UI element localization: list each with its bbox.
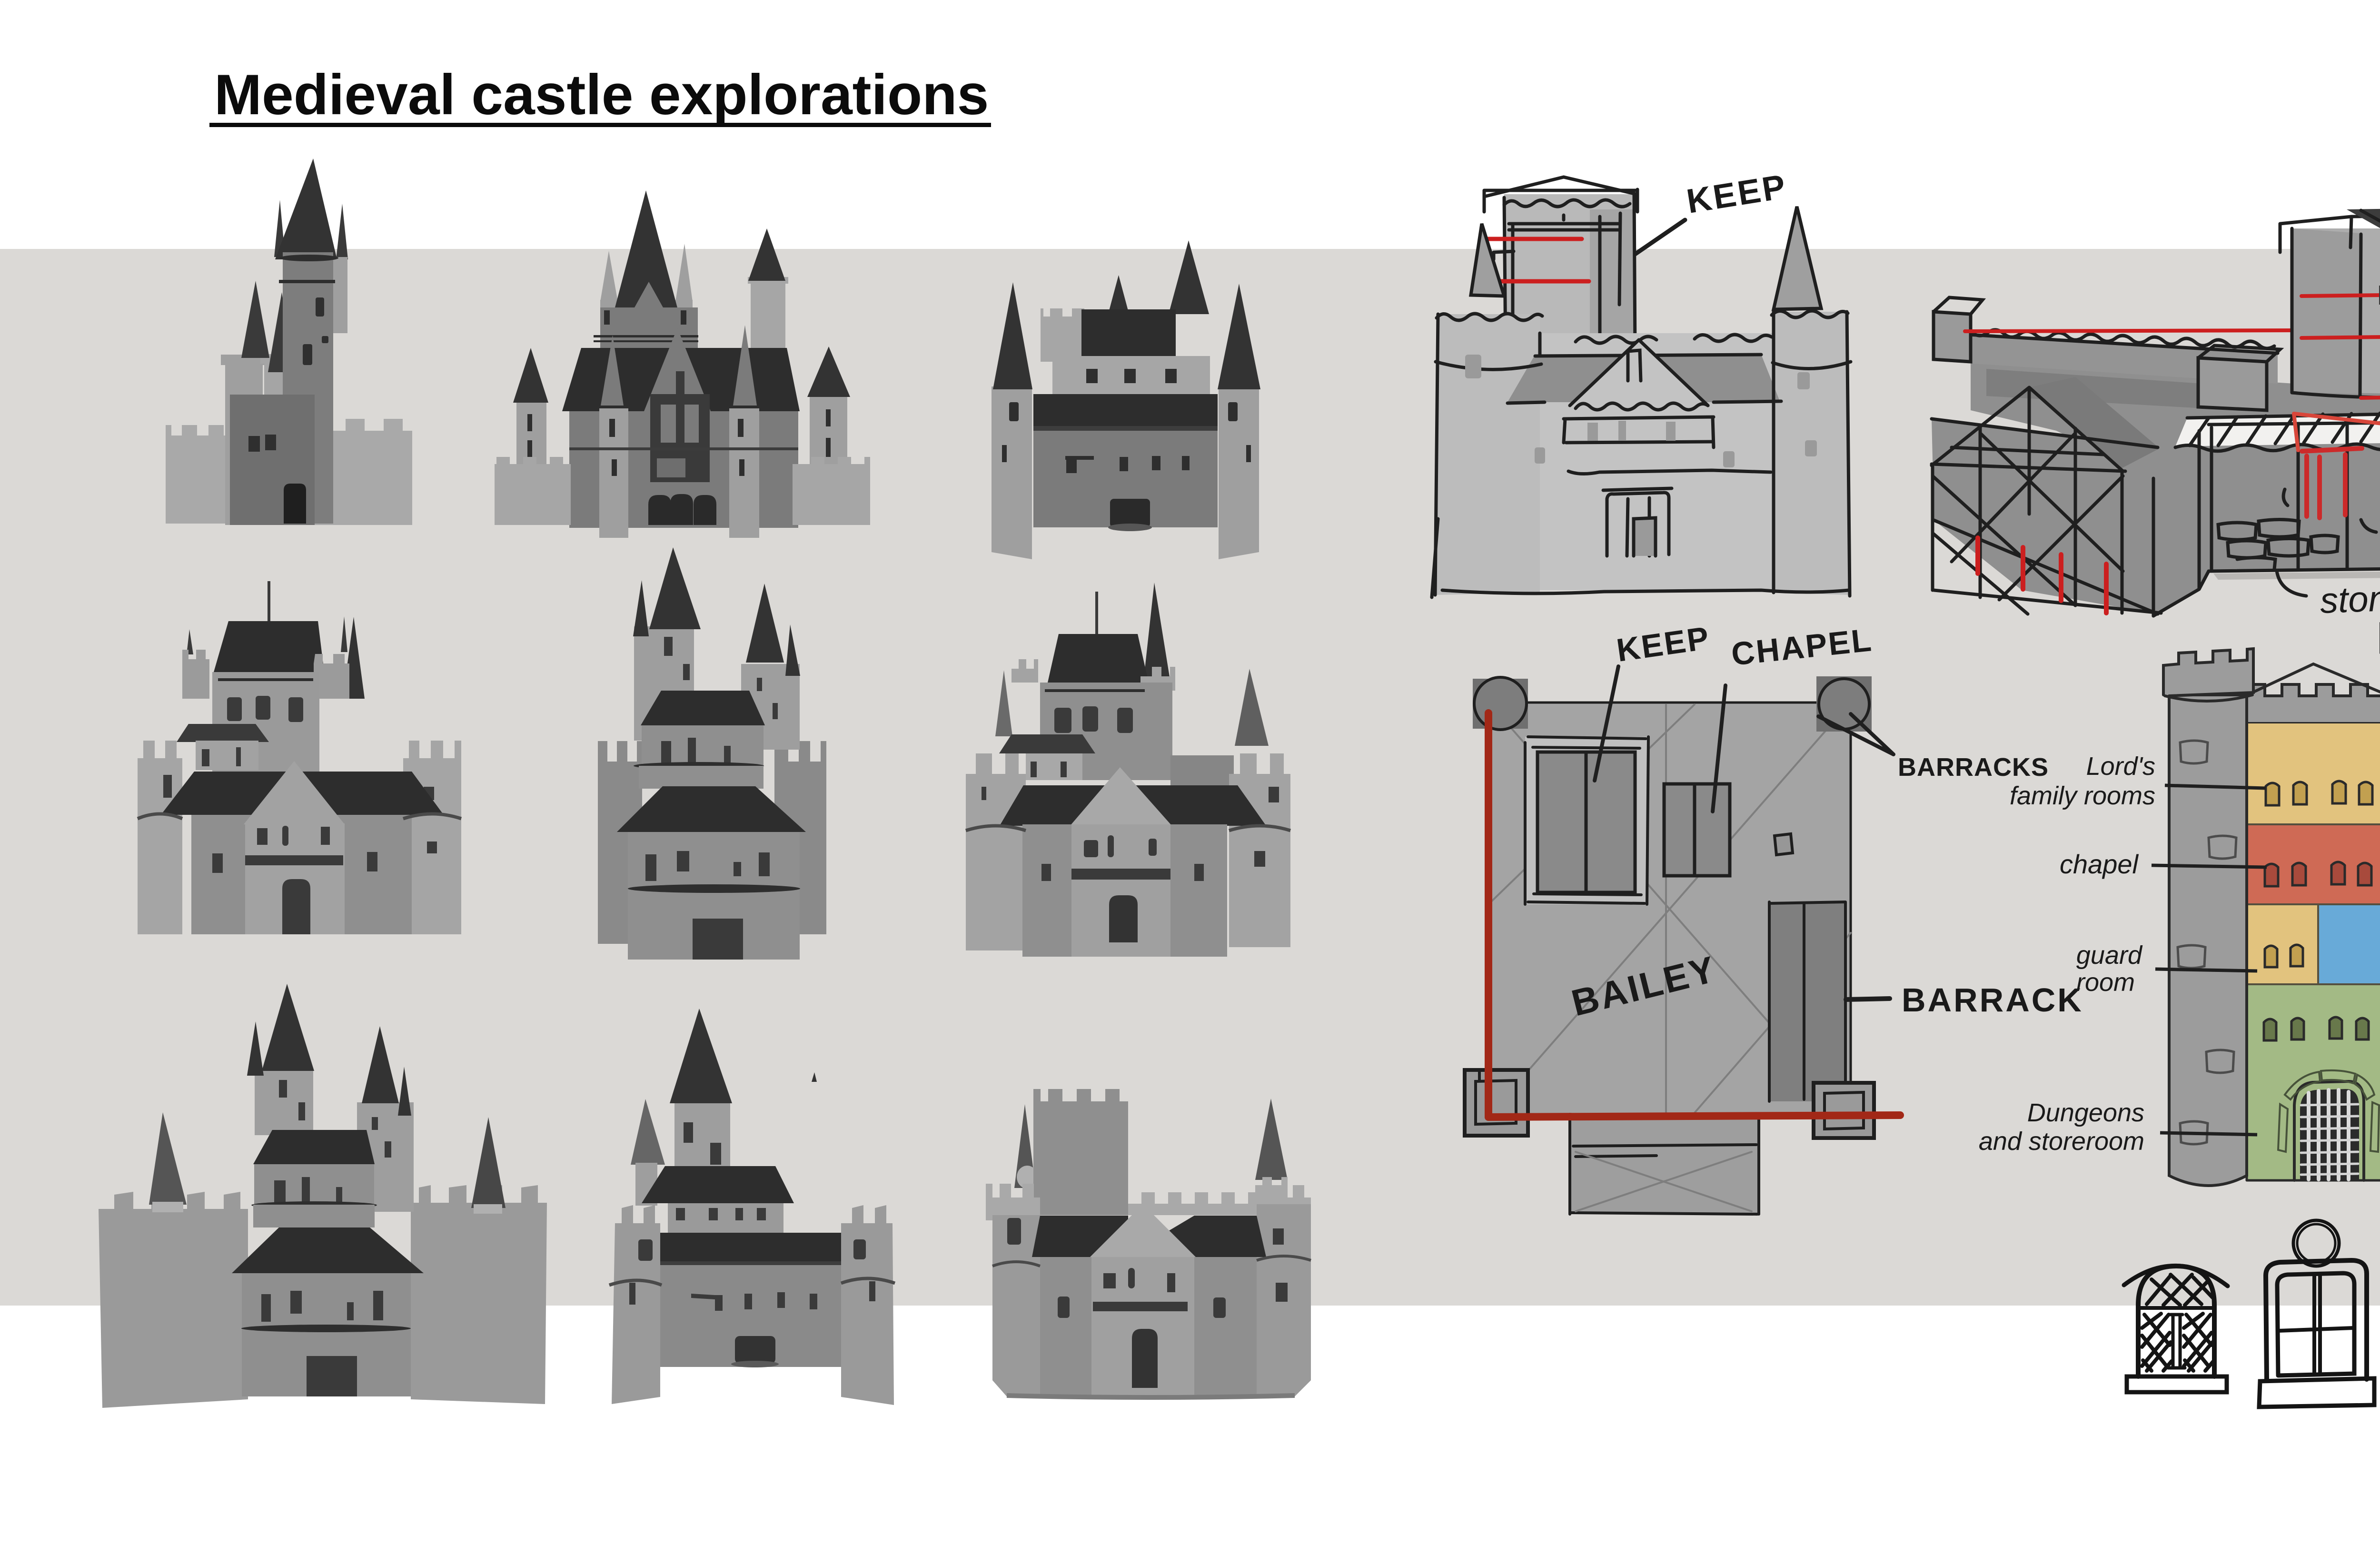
svg-text:and storeroom: and storeroom (1979, 1127, 2144, 1156)
svg-text:room: room (2076, 968, 2135, 997)
svg-text:BARRACKS: BARRACKS (1898, 753, 2049, 782)
svg-text:family rooms: family rooms (2010, 782, 2155, 810)
svg-text:Dungeons: Dungeons (2027, 1099, 2144, 1127)
svg-text:Medieval castle explorations: Medieval castle explorations (214, 63, 989, 127)
svg-text:guard: guard (2076, 941, 2143, 970)
svg-text:Lord's: Lord's (2086, 752, 2155, 781)
svg-text:BARRACK: BARRACK (1902, 981, 2083, 1019)
svg-text:chapel: chapel (2060, 849, 2139, 879)
svg-text:stone: stone (2320, 578, 2380, 621)
